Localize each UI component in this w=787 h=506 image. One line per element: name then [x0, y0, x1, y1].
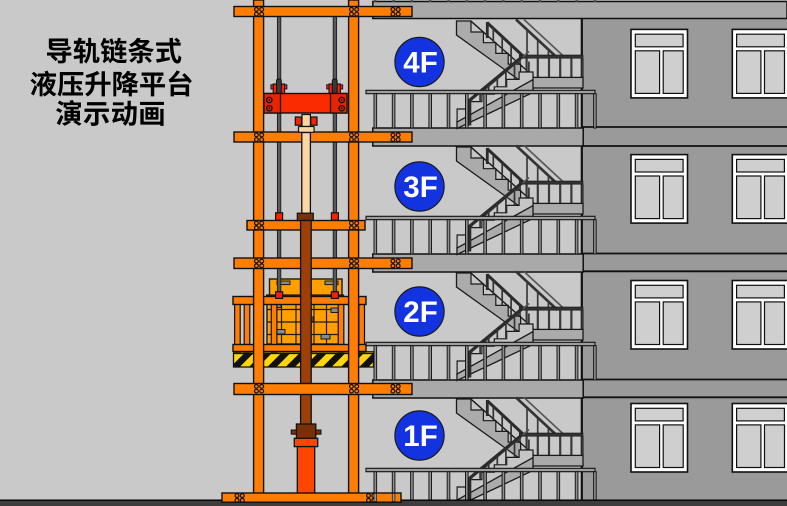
- svg-text:2F: 2F: [403, 296, 437, 329]
- svg-text:3F: 3F: [403, 171, 437, 204]
- svg-text:1F: 1F: [403, 420, 437, 453]
- svg-text:4F: 4F: [403, 46, 437, 79]
